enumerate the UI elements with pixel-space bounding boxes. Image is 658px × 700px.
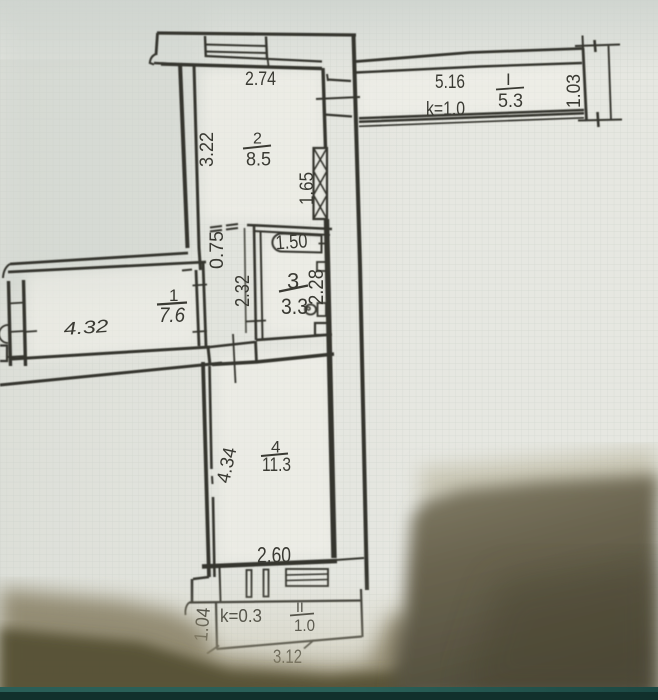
svg-text:7.6: 7.6 [159,304,185,327]
svg-text:I: I [506,70,511,89]
svg-text:1.03: 1.03 [564,74,585,108]
svg-text:11.3: 11.3 [262,455,291,476]
svg-text:0.75: 0.75 [207,231,228,269]
svg-text:k=1.0: k=1.0 [426,99,465,120]
svg-text:1.65: 1.65 [297,172,318,205]
svg-text:5.3: 5.3 [498,91,523,112]
svg-text:8.5: 8.5 [246,150,271,171]
svg-text:2: 2 [253,131,262,148]
svg-text:4.32: 4.32 [63,316,109,339]
svg-text:2.74: 2.74 [245,69,276,90]
svg-text:3.3: 3.3 [281,294,308,319]
svg-text:1.50: 1.50 [275,230,308,254]
svg-text:2.60: 2.60 [257,543,291,568]
svg-text:2.32: 2.32 [232,275,254,307]
svg-text:2.28: 2.28 [305,269,328,305]
svg-text:5.16: 5.16 [435,72,465,93]
svg-text:3.22: 3.22 [197,132,218,167]
